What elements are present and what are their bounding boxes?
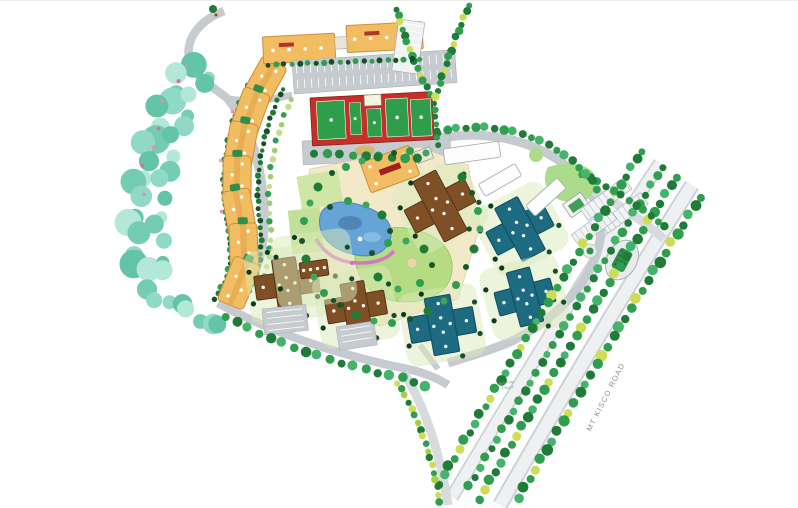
tree-icon (544, 298, 553, 307)
tree-icon (406, 400, 412, 406)
tree-icon (575, 248, 584, 257)
tree-icon (632, 234, 643, 245)
flower-icon (177, 79, 181, 83)
plaza-feature (407, 258, 417, 268)
tree-icon (429, 462, 436, 469)
tree-icon (616, 180, 626, 190)
tree-icon (603, 343, 612, 352)
tree-icon (297, 61, 303, 67)
tree-icon (467, 429, 474, 436)
tree-icon (527, 380, 534, 387)
tree-icon (519, 130, 527, 138)
tree-icon (452, 33, 460, 41)
tree-icon (401, 392, 408, 399)
tree-icon (256, 206, 261, 211)
tree-icon (434, 483, 441, 490)
tree-icon (559, 150, 568, 159)
tree-icon (260, 148, 264, 152)
tree-icon (262, 134, 268, 140)
tree-icon (493, 436, 501, 444)
tree-icon (432, 114, 438, 120)
tree-icon (617, 262, 625, 270)
tree-icon (600, 289, 608, 297)
tree-icon (576, 387, 587, 398)
tree-icon (648, 265, 658, 275)
tree-icon (415, 420, 421, 426)
building-name-tag (279, 42, 294, 47)
tree-icon (539, 385, 549, 395)
tree-icon (266, 333, 276, 343)
tree-icon (425, 449, 431, 455)
forest-tree-icon (165, 62, 187, 84)
tree-icon (566, 313, 574, 321)
tree-icon (212, 297, 217, 302)
tree-icon (410, 56, 416, 62)
tree-icon (255, 173, 261, 179)
tree-icon (610, 331, 620, 341)
shrub-icon (276, 130, 282, 136)
tree-icon (314, 183, 323, 192)
tree-icon (281, 61, 286, 66)
tree-icon (429, 262, 435, 268)
tree-icon (642, 192, 649, 199)
perimeter-forest (115, 52, 227, 334)
tree-icon (691, 200, 702, 211)
tree-icon (588, 176, 597, 185)
tree-icon (673, 174, 681, 182)
tree-icon (395, 286, 402, 293)
tree-icon (371, 318, 378, 325)
tree-icon (607, 247, 615, 255)
tree-icon (431, 470, 437, 476)
shrub-icon (267, 211, 272, 216)
site-plan-canvas: MT KISCO ROAD Amenity Plaza (0, 0, 798, 508)
tree-icon (424, 83, 431, 90)
tree-icon (377, 57, 383, 63)
tree-icon (259, 232, 264, 237)
tree-icon (474, 207, 482, 215)
shrub-icon (268, 174, 274, 180)
tree-icon (323, 149, 332, 158)
tree-icon (257, 218, 263, 224)
tree-icon (555, 330, 564, 339)
tree-icon (679, 221, 687, 229)
tree-icon (400, 153, 410, 163)
tennis-court-complex (310, 92, 434, 146)
tree-icon (270, 110, 276, 116)
tree-icon (576, 292, 585, 301)
tree-icon (374, 273, 383, 282)
flower-icon (231, 110, 234, 113)
flower-icon (160, 99, 164, 103)
pool-deep-end (338, 216, 362, 230)
pool-island (358, 237, 363, 242)
tree-icon (395, 11, 403, 19)
tree-icon (256, 179, 261, 184)
shrub-icon (272, 148, 278, 154)
tree-icon (369, 250, 375, 256)
tree-icon (435, 492, 441, 498)
tree-icon (480, 122, 489, 131)
tree-icon (659, 164, 666, 171)
building-name-tag (364, 31, 379, 36)
tree-icon (592, 295, 602, 305)
tree-icon (327, 204, 333, 210)
tree-icon (407, 316, 413, 322)
tree-icon (393, 58, 398, 63)
tree-icon (471, 123, 480, 132)
tree-icon (258, 160, 263, 165)
tree-icon (521, 334, 530, 343)
teal-building-cluster (396, 282, 488, 369)
tree-icon (639, 206, 647, 214)
tree-icon (471, 420, 480, 429)
tree-icon (335, 150, 344, 159)
tree-icon (257, 153, 263, 159)
tree-icon (394, 381, 400, 387)
tree-icon (310, 150, 318, 158)
tree-icon (559, 273, 568, 282)
tree-icon (209, 5, 217, 13)
tree-icon (497, 424, 506, 433)
tree-icon (417, 57, 422, 62)
tree-icon (535, 136, 544, 145)
forest-tree-icon (177, 300, 194, 317)
tree-icon (302, 255, 311, 264)
tree-icon (266, 123, 271, 128)
tree-icon (665, 237, 675, 247)
tree-icon (290, 62, 295, 67)
shrub-icon (281, 112, 287, 118)
tree-icon (307, 200, 314, 207)
tree-icon (559, 415, 570, 426)
tree-icon (627, 303, 637, 313)
tree-icon (639, 287, 647, 295)
court-pavilion (364, 94, 382, 106)
tree-icon (569, 398, 579, 408)
tree-icon (311, 274, 318, 281)
tree-icon (470, 245, 479, 254)
tree-icon (458, 435, 468, 445)
tree-icon (362, 58, 367, 63)
tree-icon (434, 134, 440, 140)
tree-icon (300, 217, 308, 225)
tree-icon (452, 281, 460, 289)
tree-icon (556, 358, 566, 368)
tree-icon (593, 264, 602, 273)
tree-icon (456, 445, 465, 454)
tree-icon (474, 409, 484, 419)
forest-tree-icon (153, 260, 173, 280)
tree-icon (568, 156, 577, 165)
tree-icon (254, 192, 260, 198)
tree-icon (602, 183, 609, 190)
flower-icon (215, 14, 218, 17)
forest-tree-icon (146, 292, 162, 308)
tree-icon (480, 485, 490, 495)
tree-icon (594, 213, 603, 222)
tree-icon (431, 476, 439, 484)
tree-icon (257, 168, 262, 173)
forest-tree-icon (131, 186, 153, 208)
tree-icon (554, 284, 562, 292)
tree-icon (483, 403, 490, 410)
tree-icon (549, 368, 558, 377)
tree-icon (516, 421, 526, 431)
forest-tree-icon (145, 215, 164, 234)
tree-icon (440, 470, 449, 479)
tree-icon (452, 124, 460, 132)
tree-icon (508, 441, 516, 449)
tree-icon (660, 222, 668, 230)
shrub-icon (267, 164, 273, 170)
flower-icon (219, 159, 223, 163)
tree-icon (552, 426, 562, 436)
tree-icon (402, 38, 410, 46)
shrub-icon (289, 97, 294, 102)
tree-icon (653, 171, 662, 180)
tree-icon (346, 60, 351, 65)
tree-icon (633, 154, 643, 164)
flower-icon (143, 193, 146, 196)
shrub-icon (268, 227, 274, 233)
tree-icon (420, 381, 431, 392)
tree-icon (391, 150, 397, 156)
tree-icon (413, 154, 422, 163)
tree-icon (553, 147, 560, 154)
tree-icon (419, 76, 427, 84)
tree-icon (384, 370, 394, 380)
tree-icon (281, 87, 285, 91)
tree-icon (256, 198, 262, 204)
tree-icon (496, 459, 505, 468)
tree-icon (451, 455, 459, 463)
tree-icon (578, 238, 588, 248)
tree-icon (486, 395, 494, 403)
tree-icon (374, 153, 383, 162)
brown-building-small (269, 227, 359, 311)
tree-icon (463, 481, 472, 490)
tree-icon (274, 98, 279, 103)
shrub-icon (268, 237, 274, 243)
tree-icon (535, 454, 545, 464)
tree-icon (424, 307, 433, 316)
forest-tree-icon (139, 151, 159, 171)
tree-icon (480, 453, 489, 462)
tree-icon (278, 92, 284, 98)
tree-icon (543, 351, 550, 358)
tree-icon (398, 385, 405, 392)
tree-icon (538, 358, 547, 367)
tree-icon (621, 315, 629, 323)
tree-icon (623, 174, 630, 181)
tree-icon (630, 293, 641, 304)
tree-icon (537, 309, 545, 317)
tree-icon (301, 347, 312, 358)
forest-tree-icon (131, 130, 155, 154)
tree-icon (261, 141, 266, 146)
tree-icon (463, 264, 469, 270)
tree-icon (514, 494, 524, 504)
slab-building (443, 141, 501, 165)
tree-icon (410, 378, 419, 387)
tree-icon (589, 304, 599, 314)
tree-icon (437, 72, 445, 80)
tree-icon (584, 286, 591, 293)
tree-icon (626, 162, 635, 171)
tree-icon (329, 170, 335, 176)
tree-icon (374, 369, 382, 377)
tree-icon (431, 93, 439, 101)
tree-icon (622, 252, 631, 261)
tree-icon (492, 468, 500, 476)
tree-icon (273, 105, 278, 110)
tree-icon (458, 173, 467, 182)
tree-icon (624, 219, 632, 227)
tree-icon (469, 190, 475, 196)
shrub-icon (267, 184, 272, 189)
tree-icon (259, 237, 265, 243)
tree-icon (626, 197, 633, 204)
flower-icon (185, 65, 188, 68)
tree-icon (396, 18, 403, 25)
tree-icon (267, 115, 272, 120)
tree-icon (312, 350, 322, 360)
tree-icon (233, 317, 243, 327)
tree-icon (572, 331, 582, 341)
tree-icon (575, 164, 583, 172)
tree-icon (431, 101, 437, 107)
forest-tree-icon (195, 74, 214, 93)
forest-tree-icon (162, 126, 179, 143)
tree-icon (359, 158, 366, 165)
tree-icon (419, 432, 426, 439)
flower-icon (350, 261, 354, 265)
flower-icon (220, 210, 224, 214)
tree-icon (320, 289, 328, 297)
tree-icon (344, 197, 352, 205)
tree-icon (370, 59, 375, 64)
site-plan-svg: MT KISCO ROAD Amenity Plaza (0, 1, 798, 508)
forest-tree-icon (145, 95, 168, 118)
tree-icon (258, 225, 263, 230)
tree-icon (618, 228, 628, 238)
tree-icon (414, 65, 421, 72)
tree-icon (443, 125, 452, 134)
tree-icon (559, 321, 569, 331)
tree-icon (406, 147, 414, 155)
building-connector (335, 37, 348, 50)
tree-icon (606, 278, 615, 287)
tree-icon (499, 125, 509, 135)
tree-icon (607, 198, 615, 206)
tree-icon (639, 226, 648, 235)
tree-icon (527, 475, 535, 483)
tree-icon (423, 440, 430, 447)
tree-icon (656, 200, 664, 208)
tree-icon (476, 464, 484, 472)
tree-icon (617, 191, 625, 199)
tree-icon (435, 142, 441, 148)
tree-icon (314, 61, 319, 66)
pool-shallow (363, 232, 381, 242)
tree-icon (266, 63, 271, 68)
tree-icon (472, 474, 479, 481)
tree-icon (426, 454, 433, 461)
traffic-island-planting (587, 248, 594, 255)
tree-icon (591, 223, 599, 231)
tree-icon (673, 228, 684, 239)
shrub-icon (267, 200, 273, 206)
tree-icon (512, 432, 521, 441)
tree-icon (586, 233, 593, 240)
tree-icon (353, 58, 359, 64)
tree-icon (566, 342, 575, 351)
tree-icon (601, 257, 608, 264)
tree-icon (329, 59, 335, 65)
tree-icon (504, 415, 514, 425)
tree-icon (508, 126, 517, 135)
tree-icon (338, 360, 346, 368)
tree-icon (378, 211, 387, 220)
tree-icon (518, 482, 529, 493)
forest-tree-icon (150, 169, 168, 187)
tree-icon (441, 298, 448, 305)
tree-icon (477, 226, 484, 233)
tree-icon (611, 236, 620, 245)
flower-icon (141, 164, 145, 168)
shrub-icon (279, 122, 284, 127)
tree-icon (463, 125, 470, 132)
tree-icon (609, 268, 619, 278)
tree-icon (500, 448, 510, 458)
tree-icon (489, 445, 496, 452)
tree-icon (432, 106, 439, 113)
tree-icon (460, 14, 467, 21)
tree-icon (590, 274, 598, 282)
tree-icon (387, 228, 393, 234)
tree-icon (342, 163, 350, 171)
tree-icon (586, 370, 595, 379)
tree-icon (264, 128, 270, 134)
tree-icon (648, 212, 656, 220)
tree-icon (581, 169, 591, 179)
tree-icon (352, 311, 361, 320)
tree-icon (437, 80, 444, 87)
tree-icon (528, 323, 538, 333)
tree-icon (444, 52, 452, 60)
tree-icon (514, 396, 523, 405)
tree-icon (510, 408, 518, 416)
tree-icon (646, 180, 654, 188)
shrub-icon (270, 156, 277, 163)
tree-icon (258, 244, 263, 249)
tree-icon (593, 359, 603, 369)
tree-icon (305, 60, 311, 66)
shrub-icon (265, 191, 271, 197)
tree-icon (242, 322, 251, 331)
tree-icon (326, 355, 335, 364)
tree-icon (531, 369, 539, 377)
shrub-icon (285, 104, 291, 110)
tree-icon (491, 125, 499, 133)
tree-icon (475, 496, 484, 505)
tree-icon (463, 7, 471, 15)
tree-icon (398, 372, 408, 382)
tree-icon (667, 180, 677, 190)
tree-icon (386, 57, 392, 63)
tree-icon (528, 134, 535, 141)
